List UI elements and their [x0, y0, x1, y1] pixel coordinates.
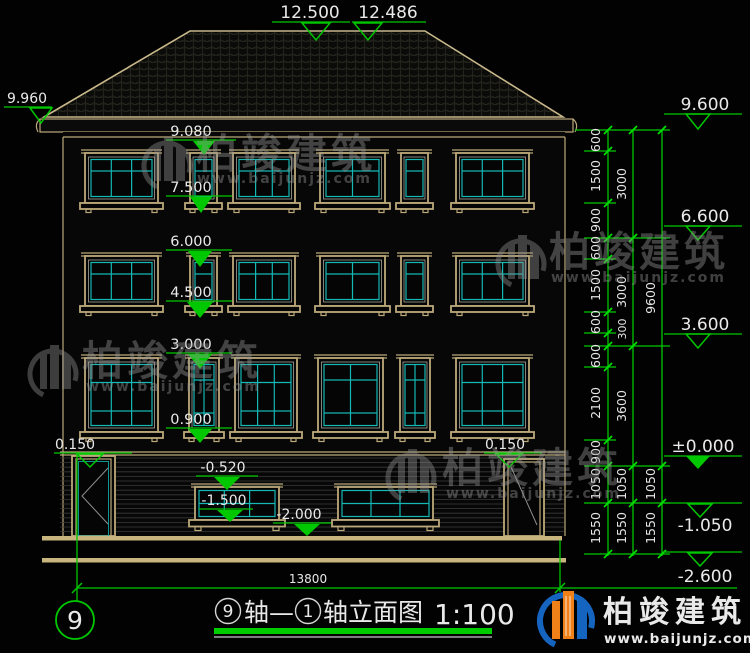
dim-col3-0: 9600 — [643, 282, 658, 314]
dim-col1-0: 600 — [588, 128, 603, 152]
dim-col1-10: 1550 — [588, 512, 603, 544]
elevation-label-center-2: 6.000 — [170, 234, 212, 250]
elevation-label-right-2: 3.600 — [681, 315, 730, 335]
brand-name: 柏竣建筑 — [603, 595, 747, 630]
window — [396, 150, 433, 213]
window — [451, 150, 534, 213]
axis-bubble: 9 — [56, 601, 94, 639]
dim-col1-1: 1500 — [588, 160, 603, 192]
title-axis-to: 1 — [303, 602, 314, 622]
dim-col3-1: 1050 — [643, 468, 658, 500]
ground-lines — [42, 536, 566, 563]
brand-logo-icon — [531, 586, 600, 653]
elevation-label-entry-left: 0.150 — [55, 437, 95, 453]
window — [315, 253, 390, 316]
dim-col2-5: 1550 — [614, 512, 629, 544]
title-rest: 轴立面图 — [323, 598, 423, 627]
elevation-label-base-ground: -2.000 — [276, 507, 321, 523]
elevation-label-center-3: 4.500 — [170, 285, 212, 301]
watermark-url: www.baijunjz.com — [86, 379, 261, 395]
title-scale: 1:100 — [434, 598, 515, 631]
dim-col1-6: 600 — [588, 344, 603, 368]
door — [72, 456, 115, 536]
dim-col2-3: 3600 — [614, 390, 629, 422]
watermark-brand: 柏竣建筑 — [549, 228, 729, 276]
brand-url: www.baijunjz.com — [604, 631, 750, 647]
watermark-url: www.baijunjz.com — [446, 486, 621, 502]
elevation-label-right-5: -2.600 — [678, 567, 733, 587]
cad-elevation-drawing: 12.500 12.486 9.960 9.080 7.500 6.000 4.… — [0, 0, 750, 653]
watermark-url: www.baijunjz.com — [197, 171, 372, 187]
roof — [44, 31, 563, 117]
elevation-label-base-window: -1.500 — [201, 493, 246, 509]
title-block: 9 轴— 1 轴立面图 1:100 — [214, 598, 515, 637]
window — [396, 253, 433, 316]
dim-col1-7: 2100 — [588, 387, 603, 419]
window — [80, 253, 163, 316]
elevation-drawing-canvas: 12.500 12.486 9.960 9.080 7.500 6.000 4.… — [0, 0, 750, 653]
elevation-label-ridge-right: 12.486 — [358, 3, 417, 23]
elevation-label-center-5: 0.900 — [170, 412, 212, 428]
dim-col1-5: 600 — [588, 310, 603, 334]
elevation-label-eave-left: 9.960 — [7, 91, 47, 107]
elevation-label-right-1: 6.600 — [681, 207, 730, 227]
dim-col3-2: 1550 — [643, 512, 658, 544]
window — [451, 355, 534, 442]
brand-logo: 柏竣建筑 www.baijunjz.com — [531, 586, 750, 653]
title-mid: 轴— — [244, 598, 294, 627]
window — [395, 355, 435, 442]
dim-total-label: 13800 — [289, 572, 327, 586]
elevation-label-right-0: 9.600 — [681, 95, 730, 115]
right-dimension-chain: 600 1500 900 600 1500 600 600 2100 900 1… — [575, 95, 742, 587]
dim-col2-0: 3000 — [614, 168, 629, 200]
window — [228, 253, 300, 316]
elevation-label-right-3: ±0.000 — [672, 437, 735, 457]
watermark-brand: 柏竣建筑 — [82, 337, 262, 385]
dim-col2-2: 300 — [616, 319, 629, 340]
elevation-label-ridge-left: 12.500 — [280, 3, 339, 23]
title-axis-from: 9 — [223, 602, 234, 622]
elevation-label-right-4: -1.050 — [678, 516, 733, 536]
window — [313, 355, 388, 442]
axis-bubble-label: 9 — [67, 606, 83, 635]
watermark-brand: 柏竣建筑 — [442, 444, 622, 492]
watermark-url: www.baijunjz.com — [551, 270, 726, 286]
elevation-label-base-lintel: -0.520 — [200, 460, 245, 476]
watermark: 柏竣建筑 www.baijunjz.com — [22, 337, 262, 405]
